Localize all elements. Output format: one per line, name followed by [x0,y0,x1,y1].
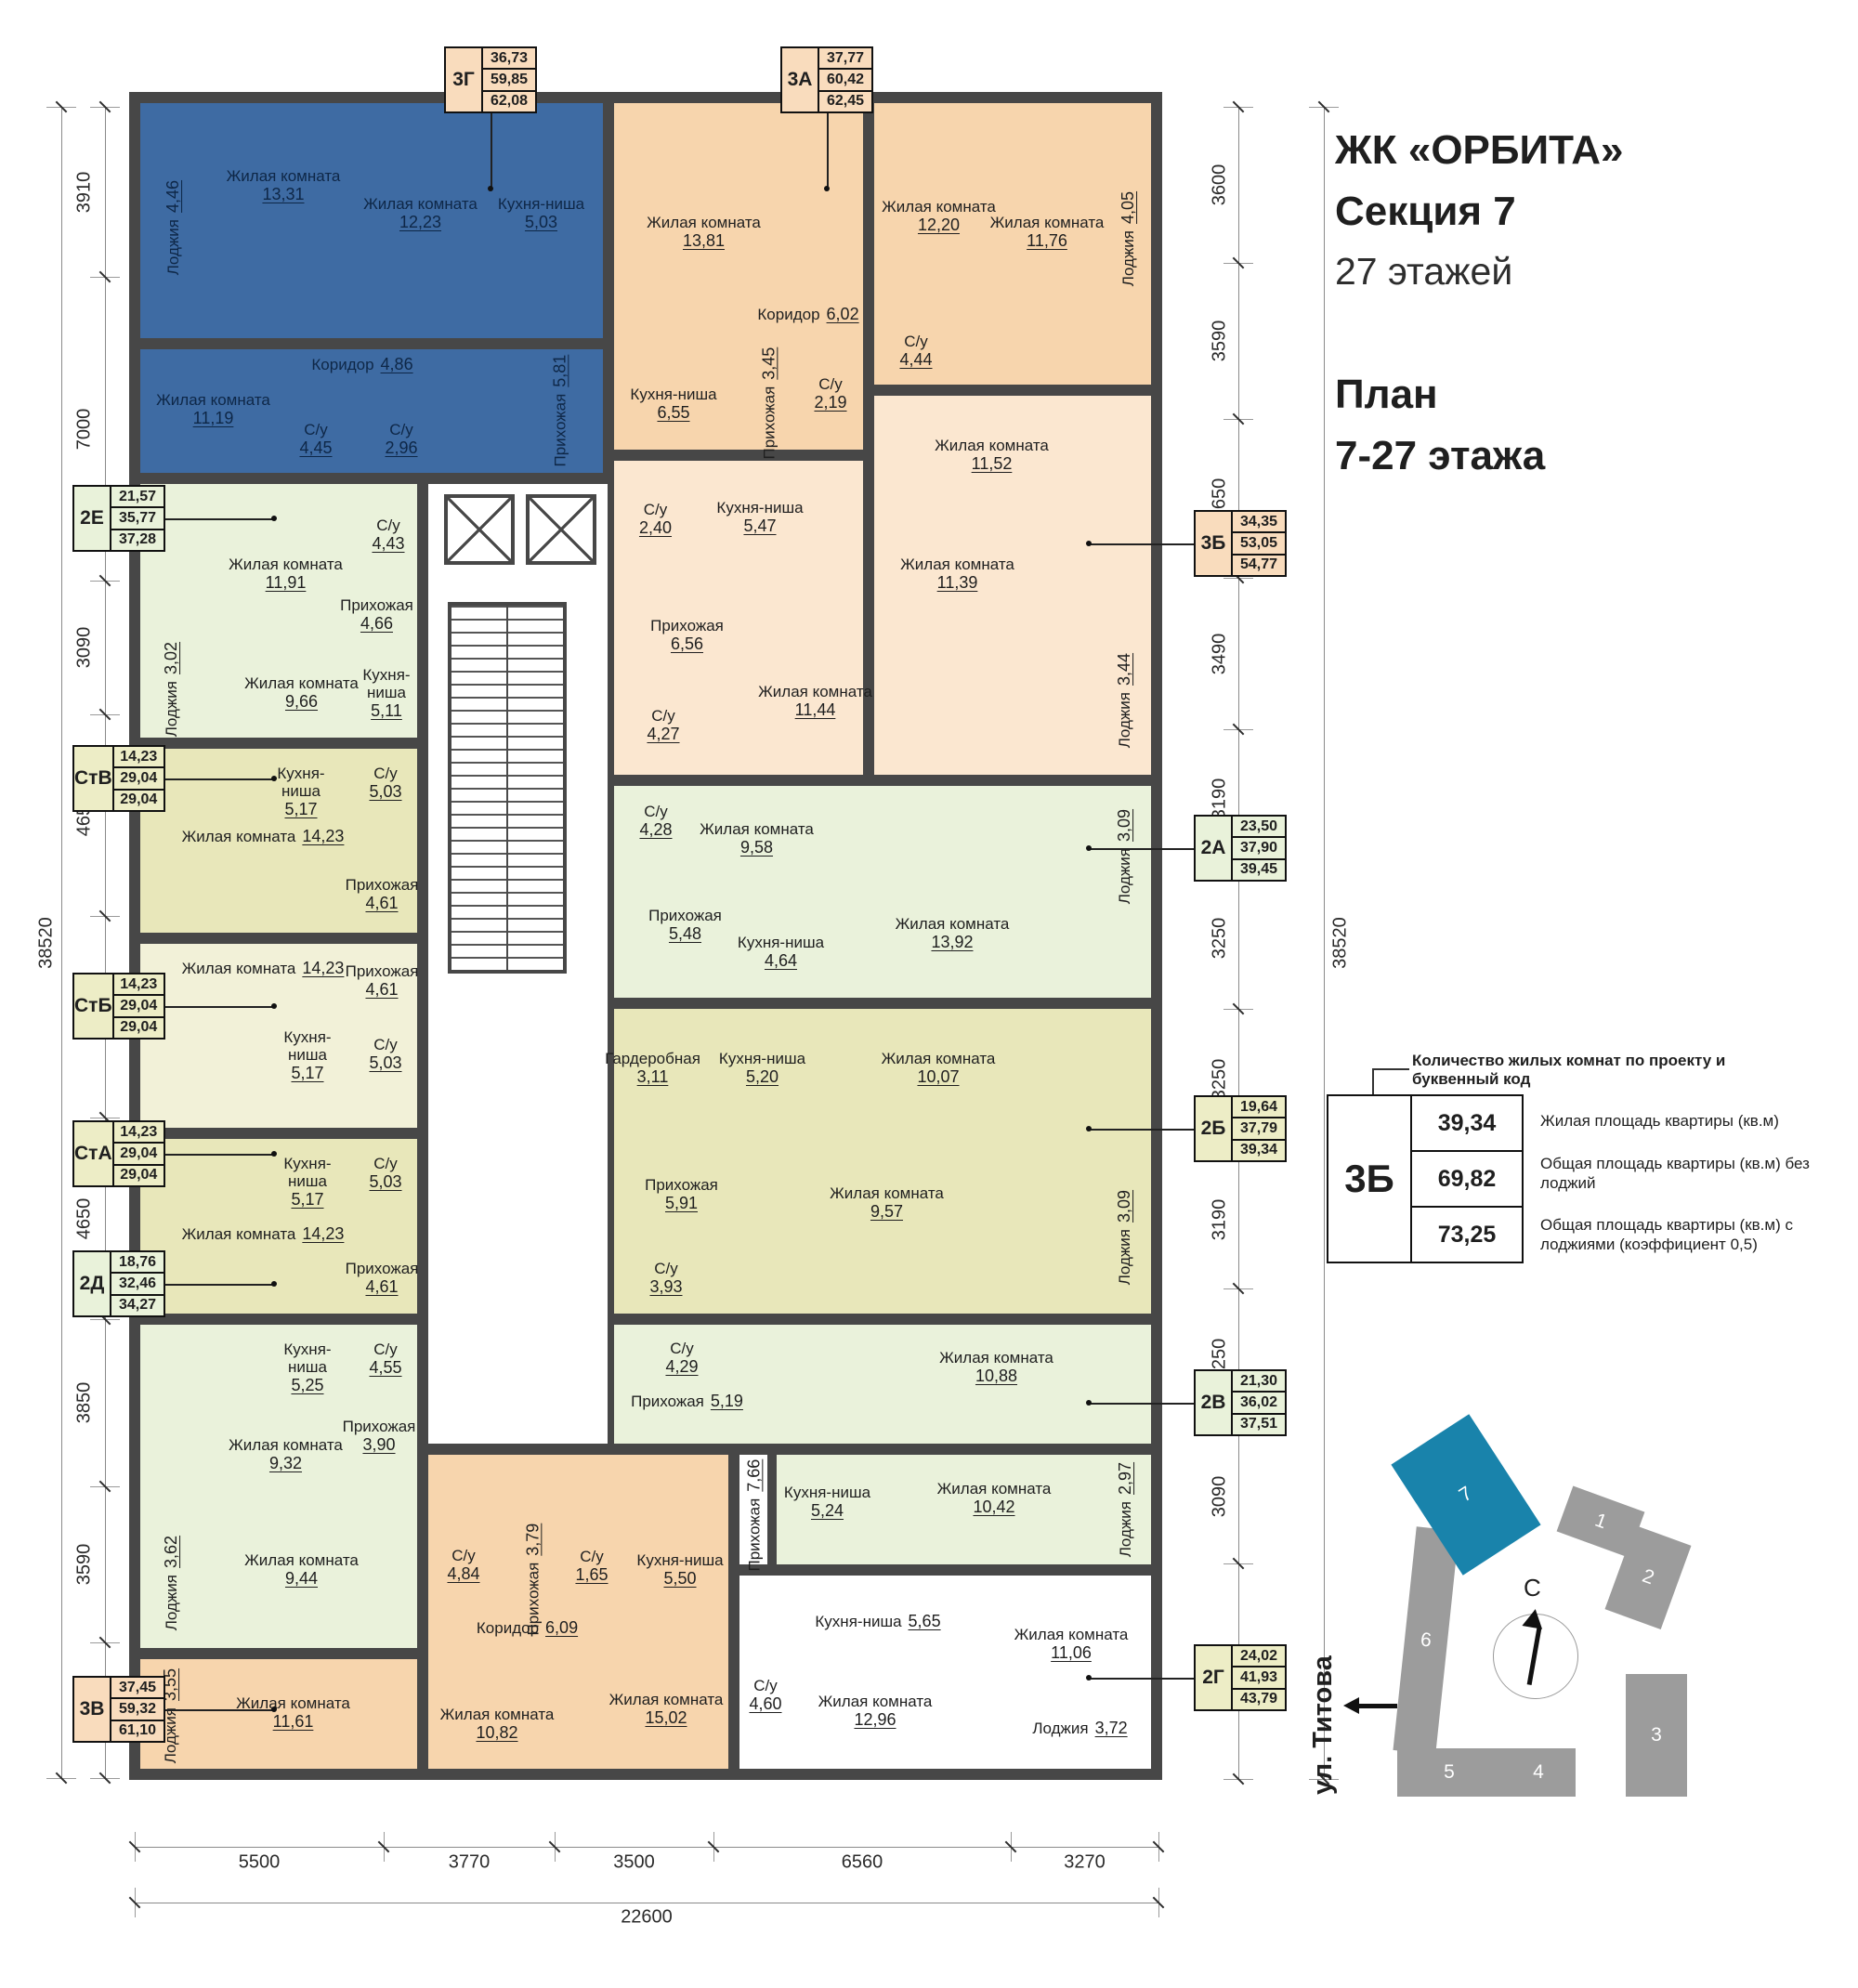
dimension-overall-label: 22600 [621,1907,673,1929]
room-label: С/у4,60 [736,1668,795,1723]
apartment-code: СтА [74,1122,114,1185]
room-area: 4,61 [365,894,398,912]
room-area: 3,11 [637,1067,669,1086]
room-name: Жилая комната [882,198,996,216]
apartment-label-3v: 3В37,4559,3261,10 [72,1676,165,1743]
room-label: С/у2,96 [364,409,438,469]
room-label: Жилая комната11,19 [141,351,285,467]
room-name: Жилая комната [937,1480,1052,1498]
apartment-area-value: 37,77 [819,48,871,70]
room-area: 5,17 [284,800,317,818]
site-building-number: 7 [1456,1483,1477,1507]
dimension-label: 3090 [1210,1476,1231,1518]
room-area: 9,66 [285,692,318,711]
room-label: Кухня-ниша5,50 [630,1525,730,1614]
room-area: 4,86 [381,355,413,373]
apartment-label-sta: СтА14,2329,0429,04 [72,1120,165,1187]
room-name: С/у [818,375,843,393]
room-label: Жилая комната10,07 [855,1017,1022,1119]
apartment-code: 2Д [74,1252,111,1315]
room-area: 6,02 [827,305,859,323]
apartment-area-value: 14,23 [114,1122,164,1144]
apartment-area-value: 59,85 [483,70,535,91]
room-area: 4,60 [749,1694,781,1713]
room-name: Прихожая [631,1393,704,1410]
room-name: Жилая комната [182,1225,296,1243]
room-name: Прихожая [745,1498,763,1572]
room-area: 14,23 [302,1224,344,1243]
room-label: Лоджия2,97 [1096,1455,1154,1564]
room-label: Прихожая4,61 [342,946,422,1015]
room-area: 3,45 [759,347,778,380]
room-label: С/у4,29 [645,1327,719,1390]
dimension-line [135,1847,1158,1848]
room-name: Жилая комната [990,214,1105,231]
room-label: Коридор4,86 [293,355,432,403]
room-name: Жилая комната [609,1691,724,1708]
room-name: Лоджия [1116,848,1133,904]
apartment-code: 2Б [1196,1097,1233,1160]
room-area: 11,76 [1027,231,1067,250]
label-leader-line [165,1284,275,1286]
label-leader-dot [1086,541,1092,546]
room-area: 7,66 [744,1459,763,1492]
room-area: 3,79 [523,1524,542,1556]
apartment-area-value: 29,04 [114,1166,164,1185]
room-name: Жилая комната [229,556,343,573]
dimension-line [135,1903,1158,1903]
apartment-area-value: 39,45 [1233,860,1285,880]
apartment-area-value: 37,28 [111,530,164,550]
label-leader-dot [1086,1126,1092,1131]
site-building-number: 3 [1651,1724,1662,1746]
apartment-label-2a: 2А23,5037,9039,45 [1194,815,1287,882]
room-area: 4,45 [299,438,332,457]
apartment-code: 3В [74,1678,111,1741]
room-label: С/у5,03 [349,1141,422,1206]
room-area: 6,09 [545,1618,578,1637]
apartment-area-value: 62,45 [819,92,871,111]
room-area: 4,44 [899,350,932,369]
apartment-area-value: 54,77 [1233,556,1285,575]
room-name: С/у [644,803,668,820]
dimension-label: 3910 [74,171,96,213]
room-area: 10,42 [973,1498,1014,1516]
street-label: ул. Титова [1308,1618,1339,1795]
room-name: Лоджия [1116,692,1133,748]
room-label: Кухня-ниша5,11 [351,650,422,736]
room-area: 10,82 [476,1723,517,1742]
room-name: Прихожая [340,596,413,614]
dimension-line [61,107,62,1778]
room-name: С/у [373,1155,398,1172]
apartment-code: 2В [1196,1371,1233,1434]
apartment-area-value: 14,23 [114,747,164,768]
room-label: Жилая комната11,44 [739,650,892,752]
site-building-number: 2 [1639,1565,1656,1590]
room-name: Кухня-ниша [719,1050,805,1067]
apartment-area-value: 37,79 [1233,1118,1285,1140]
room-name: Жилая комната [244,1551,359,1569]
label-leader-line [827,113,829,190]
legend-desc-total-loggia: Общая площадь квартиры (кв.м) с лоджиями… [1540,1215,1847,1255]
room-label: Жилая комната11,06 [992,1600,1150,1688]
room-area: 3,90 [362,1435,395,1454]
label-leader-line [1090,848,1194,850]
room-area: 3,93 [649,1277,682,1296]
room-area: 3,09 [1115,1190,1133,1223]
room-area: 5,03 [369,782,401,801]
room-label: Жилая комната11,39 [881,518,1034,630]
room-label: Жилая комната9,58 [699,790,815,887]
room-area: 3,09 [1115,809,1133,842]
room-area: 11,61 [273,1712,314,1731]
room-label: Лоджия3,72 [1008,1719,1152,1765]
room-name: Кухня-ниша [815,1613,901,1630]
label-leader-line [1090,1678,1194,1680]
room-area: 5,50 [663,1569,696,1588]
room-name: С/у [651,707,675,725]
room-name: Кухня-ниша [265,1155,350,1190]
dimension-label: 3190 [1210,778,1231,819]
label-leader-line [1090,543,1194,545]
room-area: 4,29 [665,1357,698,1376]
floors-subtitle: 27 этажей [1335,253,1624,291]
apartment-code: 3Б [1196,512,1233,575]
room-area: 11,52 [972,454,1013,473]
room-name: Прихожая [648,907,722,924]
site-building-number: 1 [1591,1510,1609,1535]
plan-title-line1: План [1335,374,1624,415]
label-leader-dot [271,776,277,781]
street-arrow-bar [1358,1704,1397,1708]
room-name: Прихожая [346,962,419,980]
apartment-area-value: 29,04 [114,996,164,1017]
apartment-area-value: 60,42 [819,70,871,91]
room-name: Лоджия [1116,1229,1133,1285]
elevator-shaft-icon [526,494,596,565]
room-label: Лоджия3,09 [1094,1166,1154,1310]
dimension-label: 3190 [1210,1198,1231,1240]
room-name: Лоджия [1119,230,1137,286]
apartment-label-3b: 3Б34,3553,0554,77 [1194,510,1287,577]
room-name: Жилая комната [156,391,270,409]
room-area: 10,07 [917,1067,959,1086]
room-label: Прихожая4,61 [342,859,422,929]
room-label: Жилая комната14,23 [156,827,370,875]
room-area: 4,61 [365,1277,398,1296]
room-label: Прихожая3,90 [336,1405,422,1468]
room-label: Прихожая4,61 [342,1243,422,1313]
room-name: С/у [904,333,928,350]
room-name: Жилая комната [830,1184,944,1202]
dimension-line [1324,107,1325,1779]
room-area: 3,44 [1115,653,1133,686]
room-label: Жилая комната9,57 [810,1157,963,1249]
room-area: 5,19 [711,1392,743,1410]
label-leader-line [1090,1129,1194,1131]
room-name: Жилая комната [818,1693,933,1710]
dimension-label: 5500 [239,1852,281,1874]
room-area: 12,23 [399,213,441,231]
room-label: Кухня-ниша4,64 [732,915,830,989]
room-name: Жилая комната [900,556,1014,573]
room-name: Кухня-ниша [265,1028,350,1064]
dimension-line [105,107,106,1778]
dimension-label: 3600 [1210,164,1231,206]
apartment-area-value: 37,51 [1233,1415,1285,1434]
room-label: Лоджия4,46 [139,153,206,302]
label-leader-dot [1086,1675,1092,1681]
room-area: 11,39 [937,573,978,592]
room-label: Лоджия3,09 [1094,785,1154,929]
label-leader-dot [271,1281,277,1287]
room-label: Жилая комната11,61 [212,1661,374,1765]
apartment-label-3a: 3А37,7760,4262,45 [780,46,873,113]
floor-plan-page: ЖК «ОРБИТА» Секция 7 27 этажей План 7-27… [0,0,1858,1988]
room-area: 4,27 [647,725,679,743]
room-name: Жилая комната [758,683,872,700]
north-label: С [1524,1574,1541,1602]
room-name: Коридор [477,1619,539,1637]
room-label: С/у4,55 [349,1327,422,1392]
room-name: Жилая комната [363,195,478,213]
room-name: С/у [753,1677,778,1694]
room-label: Жилая комната13,92 [869,883,1036,985]
room-label: Лоджия4,05 [1101,135,1155,344]
label-leader-dot [1086,845,1092,851]
room-label: Коридор6,02 [734,305,883,351]
room-label: Кухня-ниша5,24 [779,1460,876,1544]
room-area: 5,48 [669,924,701,943]
room-area: 15,02 [645,1708,687,1727]
room-label: С/у4,43 [356,497,421,573]
room-name: Жилая комната [1014,1626,1129,1643]
dimension-label: 3250 [1210,918,1231,960]
room-area: 5,47 [743,517,776,535]
apartment-code: 3А [782,48,819,111]
apartment-area-value: 14,23 [114,974,164,996]
apartment-area-value: 43,79 [1233,1690,1285,1709]
room-label: Жилая комната12,23 [358,153,483,274]
label-leader-dot [824,186,830,191]
room-area: 5,03 [369,1053,401,1072]
room-label: Жилая комната12,96 [801,1665,949,1758]
room-label: С/у4,28 [621,788,691,855]
room-area: 12,20 [918,216,960,234]
dimension-label: 3270 [1064,1852,1106,1874]
room-name: Кухня-ниша [716,499,803,517]
room-name: С/у [654,1260,678,1277]
room-label: Кухня-ниша5,17 [265,1014,350,1096]
room-name: Кухня-ниша [784,1484,870,1501]
apartment-label-2e: 2Е21,5735,7737,28 [72,485,165,552]
room-name: С/у [670,1340,694,1357]
room-name: Кухня-ниша [630,386,716,403]
dimension-label: 3850 [74,1382,96,1424]
apartment-area-value: 23,50 [1233,817,1285,838]
project-title: ЖК «ОРБИТА» [1335,130,1624,171]
room-label: Прихожая3,79 [506,1531,558,1628]
site-building-number: 5 [1444,1761,1455,1784]
room-name: Кухня-ниша [265,1341,350,1376]
room-label: Кухня-ниша5,03 [488,153,595,274]
room-area: 11,44 [795,700,836,719]
legend-sample-living-area: 39,34 [1412,1096,1522,1152]
room-area: 4,05 [1119,191,1137,224]
apartment-label-3g: 3Г36,7359,8562,08 [444,46,537,113]
site-building-5: 5 [1397,1748,1501,1797]
apartment-code: СтБ [74,974,114,1038]
room-area: 1,65 [575,1565,608,1584]
room-label: Жилая комната10,88 [915,1321,1078,1414]
apartment-area-value: 37,90 [1233,838,1285,859]
room-label: С/у4,45 [279,409,353,469]
room-area: 9,44 [285,1569,318,1588]
room-area: 4,84 [447,1564,479,1583]
room-area: 5,81 [550,355,569,387]
dimension-label: 3500 [613,1852,655,1874]
room-area: 5,17 [291,1190,323,1209]
dimension-overall-label: 38520 [36,917,58,969]
room-name: Прихожая [551,394,569,467]
room-label: Кухня-ниша5,65 [785,1612,971,1656]
apartment-area-value: 29,04 [114,1018,164,1038]
room-label: Коридор6,09 [437,1618,618,1667]
label-leader-dot [271,1003,277,1009]
room-name: С/у [304,421,328,438]
room-name: Коридор [311,356,373,373]
room-name: Жилая комната [882,1050,996,1067]
apartment-area-value: 29,04 [114,1144,164,1165]
room-area: 11,91 [266,573,307,592]
dimension-label: 3250 [1210,1059,1231,1101]
room-label: Жилая комната11,76 [987,172,1107,293]
dimension-label: 6560 [842,1852,883,1874]
room-area: 14,23 [302,827,344,845]
room-name: Коридор [757,306,819,323]
dimension-label: 3770 [449,1852,491,1874]
label-leader-line [165,1006,275,1008]
apartment-code: 2А [1196,817,1233,880]
room-area: 10,88 [975,1367,1017,1385]
apartment-area-value: 59,32 [111,1699,164,1720]
room-name: Гардеробная [605,1050,700,1067]
room-name: Жилая комната [182,960,296,977]
room-area: 5,17 [291,1064,323,1082]
legend-desc-living: Жилая площадь квартиры (кв.м) [1540,1111,1847,1131]
room-name: Лоджия [164,219,182,275]
room-label: Прихожая7,66 [730,1463,777,1567]
street-arrow-icon [1343,1697,1359,1714]
apartment-code: 3Г [446,48,483,111]
room-name: Жилая комната [182,828,296,845]
dimension-label: 3590 [74,1544,96,1586]
room-area: 3,62 [162,1536,180,1568]
room-name: С/у [373,765,398,782]
room-label: С/у5,03 [349,751,422,816]
apartment-code: 2Е [74,487,111,550]
room-name: Кухня-ниша [258,765,344,800]
room-label: Жилая комната13,81 [627,172,780,293]
room-name: Жилая комната [939,1349,1053,1367]
room-name: С/у [376,517,400,534]
dimension-line [1238,107,1239,1779]
room-name: Жилая комната [227,167,341,185]
dimension-label: 3490 [1210,633,1231,674]
room-area: 4,28 [639,820,672,839]
room-name: Жилая комната [440,1706,555,1723]
room-label: Прихожая6,56 [624,595,750,676]
apartment-area-value: 35,77 [111,508,164,530]
room-area: 5,11 [371,701,402,720]
room-label: Кухня-ниша5,25 [265,1327,350,1408]
room-label: Жилая комната15,02 [602,1655,730,1762]
label-leader-line [165,1154,275,1156]
room-name: Жилая комната [647,214,761,231]
room-area: 11,19 [193,409,234,427]
room-name: Прихожая [343,1418,416,1435]
room-name: С/у [373,1036,398,1053]
room-label: С/у2,19 [797,362,864,425]
room-label: Прихожая4,66 [333,583,421,647]
room-label: Прихожая5,81 [525,348,595,474]
room-name: С/у [644,501,668,518]
room-name: Прихожая [346,1260,419,1277]
room-label: Кухня-ниша5,47 [708,463,812,572]
room-label: С/у4,44 [878,320,954,382]
room-name: С/у [389,421,413,438]
dimension-label: 4650 [74,1197,96,1239]
legend-desc-total: Общая площадь квартиры (кв.м) без лоджий [1540,1154,1847,1194]
label-leader-line [165,518,275,520]
room-label: Лоджия3,62 [139,1525,203,1641]
room-label: Гардеробная3,11 [608,1024,697,1112]
room-area: 3,02 [162,642,180,674]
room-name: Кухня-ниша [498,195,584,213]
room-label: Прихожая3,45 [741,356,795,451]
room-name: Кухня-ниша [351,666,422,701]
room-name: С/у [373,1341,398,1358]
label-leader-line [165,1709,275,1711]
room-label: Кухня-ниша5,17 [265,1141,350,1223]
apartment-code: 2Г [1196,1646,1233,1709]
dimension-label: 7000 [74,408,96,450]
room-area: 5,65 [909,1612,941,1630]
room-area: 2,96 [385,438,417,457]
room-label: Лоджия3,44 [1094,624,1154,778]
room-name: Жилая комната [896,915,1010,933]
apartment-area-value: 21,30 [1233,1371,1285,1393]
room-area: 9,57 [870,1202,903,1221]
label-leader-line [491,113,492,190]
room-name: Кухня-ниша [738,934,824,951]
room-area: 12,96 [854,1710,896,1729]
room-label: С/у4,84 [425,1528,502,1602]
room-area: 4,55 [369,1358,401,1377]
label-leader-line [1090,1403,1194,1405]
apartment-label-stb: СтБ14,2329,0429,04 [72,973,165,1040]
legend-sample-total-loggia-area: 73,25 [1412,1208,1522,1262]
room-area: 13,92 [931,933,973,951]
room-name: Прихожая [346,876,419,894]
staircase-icon [448,602,567,974]
apartment-area-value: 19,64 [1233,1097,1285,1118]
room-area: 5,20 [746,1067,779,1086]
room-label: С/у4,27 [621,685,706,766]
room-name: Лоджия [1032,1720,1088,1737]
room-area: 11,06 [1051,1643,1092,1662]
